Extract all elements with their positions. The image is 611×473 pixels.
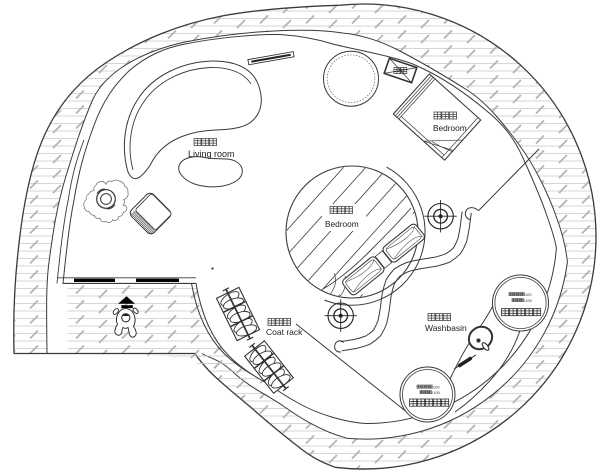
- svg-text:1100: 1100: [431, 385, 440, 390]
- svg-text:1100: 1100: [523, 292, 532, 297]
- svg-text:2100: 2100: [523, 298, 533, 303]
- svg-text:Bedroom: Bedroom: [433, 123, 467, 133]
- svg-text:Living room: Living room: [188, 149, 235, 159]
- svg-text:Coat rack: Coat rack: [266, 327, 303, 337]
- svg-text:Bedroom: Bedroom: [325, 219, 359, 229]
- svg-text:Washbasin: Washbasin: [425, 323, 467, 333]
- svg-text:2100: 2100: [431, 390, 441, 395]
